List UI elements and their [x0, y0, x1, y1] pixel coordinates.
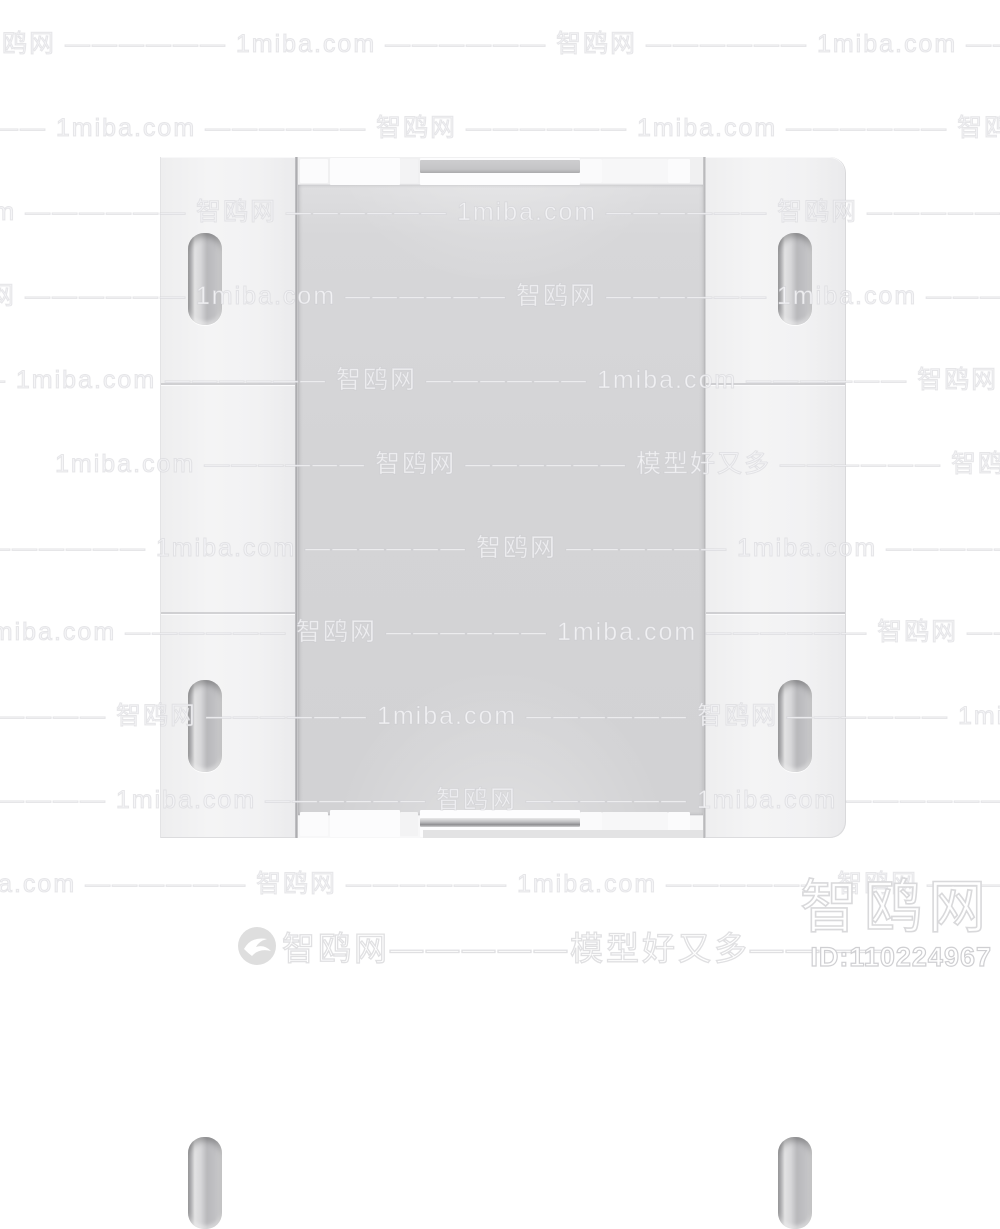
- center-panel-area: [297, 157, 705, 838]
- mounting-tab: [300, 159, 328, 183]
- watermark-row: 智鸥网 —————— 1miba.com —————— 智鸥网 —————— 1…: [0, 24, 1000, 60]
- mounting-tab: [400, 812, 418, 836]
- panel-seam: [295, 157, 298, 838]
- button-section: [161, 383, 298, 614]
- indicator-slot: [778, 233, 812, 325]
- watermark-site-name: 智鸥网: [800, 876, 992, 940]
- mounting-tab: [330, 810, 400, 837]
- top-mounting-strip: [297, 157, 705, 185]
- bird-logo-icon: [238, 927, 276, 965]
- mounting-tab: [400, 159, 418, 183]
- mounting-tab: [300, 812, 328, 836]
- right-button-column: [705, 157, 846, 838]
- button-section: [705, 157, 845, 383]
- mounting-tab: [668, 159, 690, 183]
- mounting-tab: [602, 159, 668, 183]
- button-section: [705, 612, 845, 840]
- button-section: [161, 612, 298, 840]
- wall-switch-panel: [160, 157, 845, 838]
- center-panel: [297, 185, 705, 815]
- bottom-mounting-strip: [297, 815, 705, 838]
- indicator-slot: [188, 233, 222, 325]
- panel-seam: [703, 157, 706, 838]
- bottom-clip-bar: [420, 818, 580, 827]
- button-section: [705, 383, 845, 614]
- corner-watermark: 智鸥网 ID:110224967: [800, 876, 992, 973]
- indicator-slot: [778, 1137, 812, 1229]
- watermark-row: 智鸥网 —————— 1miba.com —————— 智鸥网 —————— 1…: [0, 108, 1000, 144]
- mounting-tab: [330, 158, 400, 185]
- top-clip-bar: [420, 160, 580, 173]
- model-id: ID:110224967: [800, 942, 992, 973]
- site-logo-banner: 智鸥网—————模型好又多————: [238, 922, 894, 970]
- left-button-column: [160, 157, 298, 838]
- indicator-slot: [188, 1137, 222, 1229]
- mounting-tab: [580, 159, 602, 183]
- button-section: [161, 157, 298, 383]
- footer-band: [423, 830, 723, 838]
